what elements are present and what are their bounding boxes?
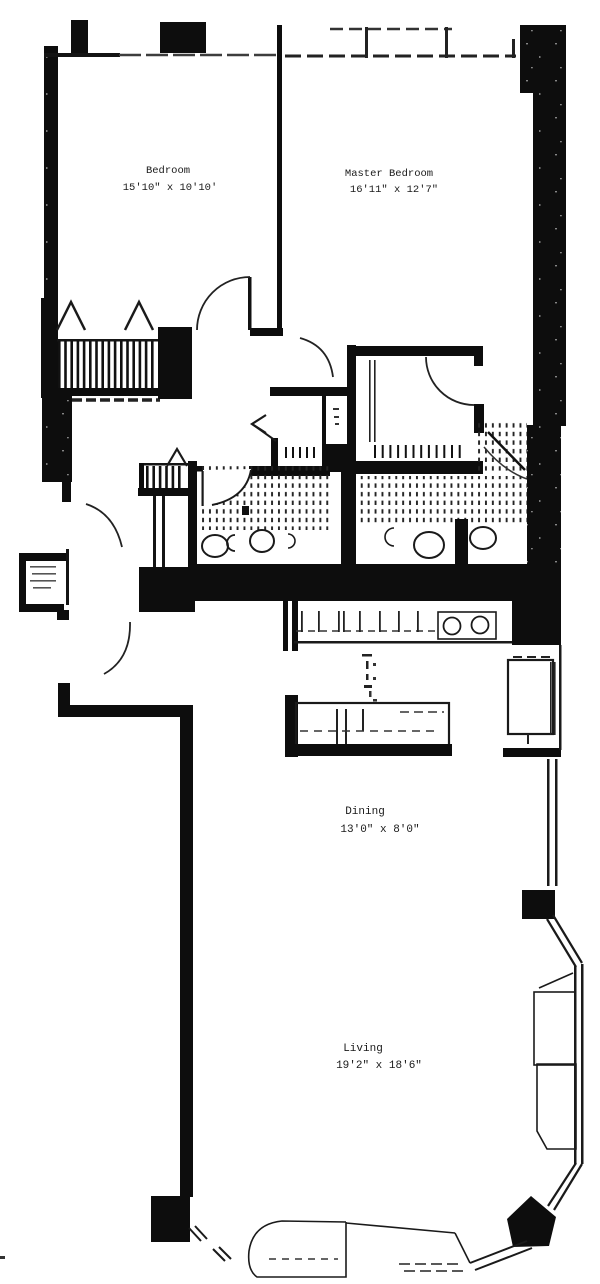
svg-text:19'2" x 18'6": 19'2" x 18'6" (336, 1060, 422, 1072)
svg-text:13'0" x 8'0": 13'0" x 8'0" (340, 824, 419, 836)
svg-text:Dining: Dining (345, 806, 385, 818)
svg-text:Master Bedroom: Master Bedroom (345, 168, 433, 180)
svg-text:Bedroom: Bedroom (146, 165, 190, 177)
svg-text:16'11" x 12'7": 16'11" x 12'7" (350, 184, 438, 196)
svg-text:15'10" x 10'10': 15'10" x 10'10' (123, 182, 218, 194)
svg-text:Living: Living (343, 1043, 383, 1055)
